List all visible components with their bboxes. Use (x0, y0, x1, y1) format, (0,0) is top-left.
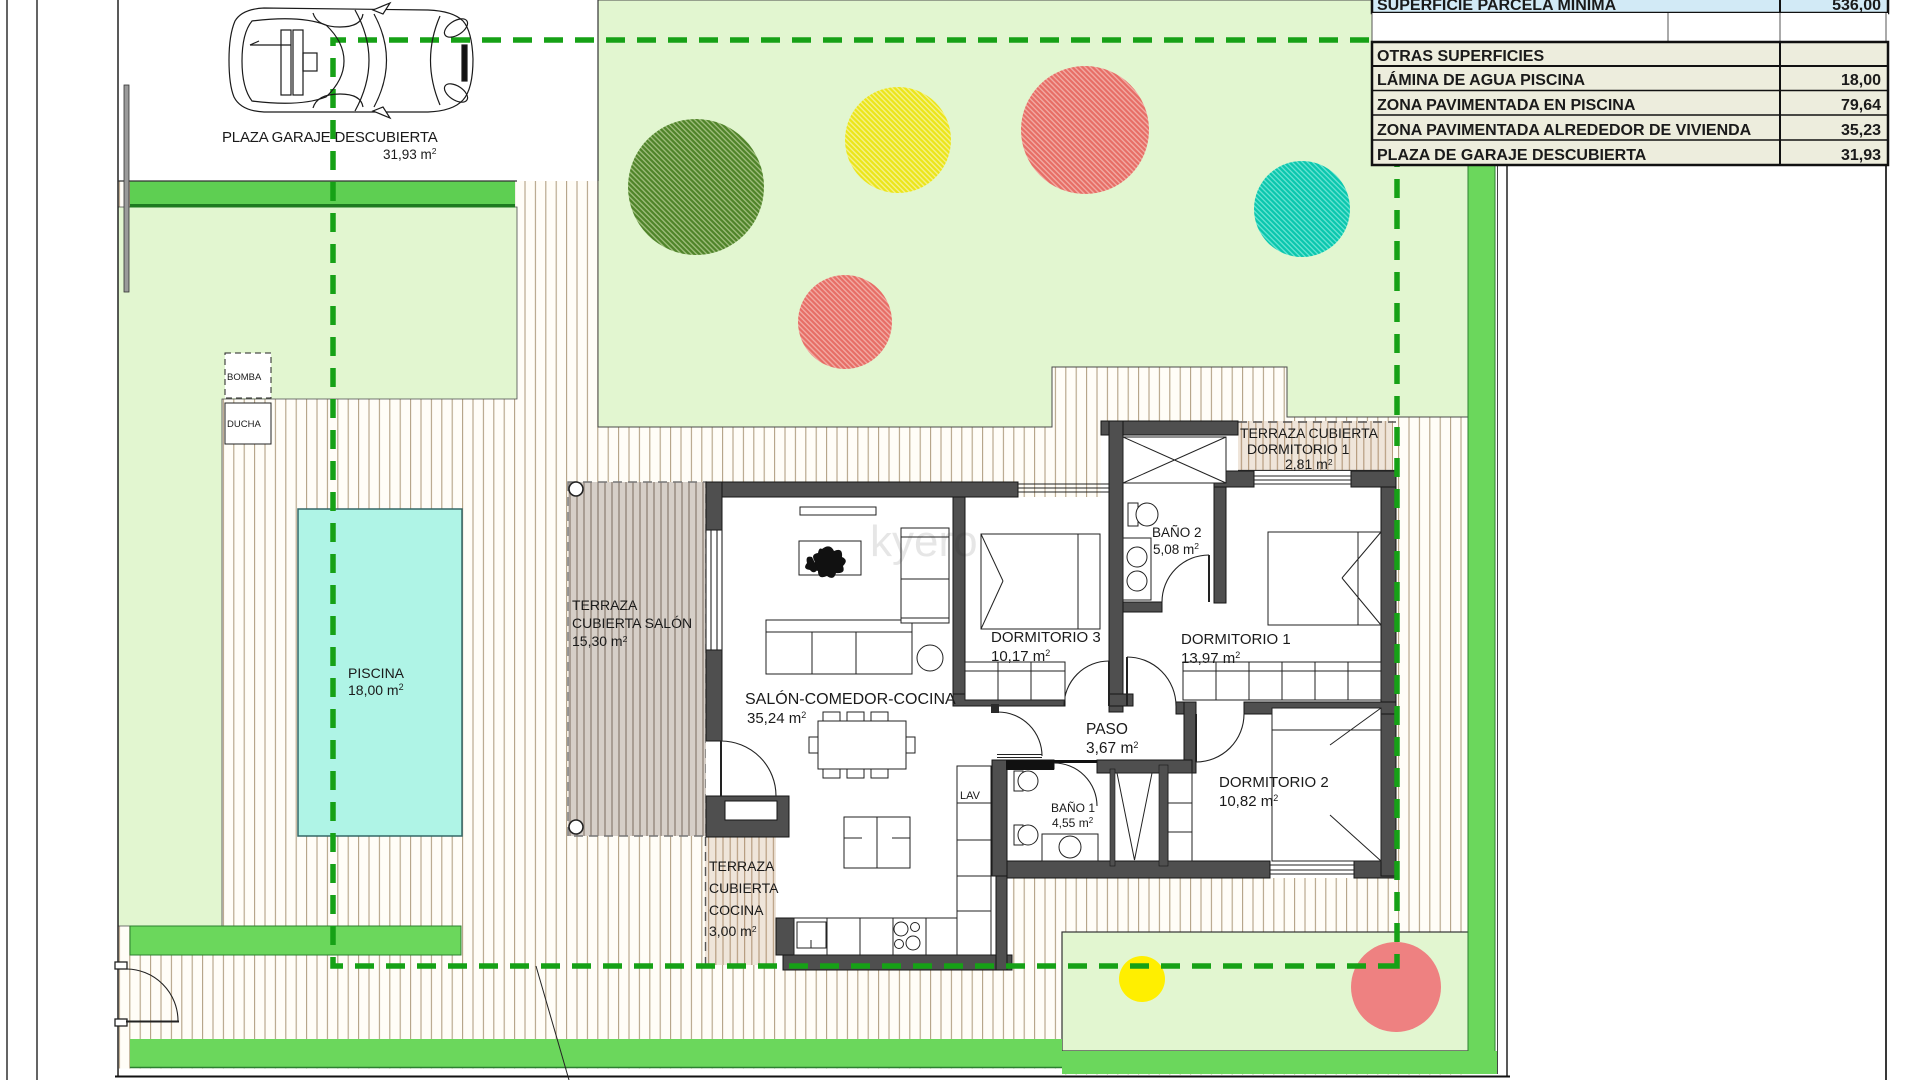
svg-text:18,00 m2: 18,00 m2 (348, 682, 404, 698)
svg-text:LÁMINA DE AGUA PISCINA: LÁMINA DE AGUA PISCINA (1377, 70, 1585, 89)
svg-text:31,93 m2: 31,93 m2 (383, 146, 437, 162)
svg-text:536,00: 536,00 (1832, 0, 1881, 14)
svg-text:PISCINA: PISCINA (348, 665, 405, 681)
svg-text:DORMITORIO 2: DORMITORIO 2 (1219, 774, 1329, 791)
svg-text:CUBIERTA: CUBIERTA (709, 880, 779, 896)
svg-text:3,00 m2: 3,00 m2 (709, 923, 757, 939)
svg-text:4,55 m2: 4,55 m2 (1052, 816, 1094, 830)
svg-text:DORMITORIO 1: DORMITORIO 1 (1181, 631, 1291, 648)
svg-text:TERRAZA: TERRAZA (572, 597, 638, 613)
svg-text:35,23: 35,23 (1841, 122, 1881, 139)
svg-text:ZONA PAVIMENTADA ALREDEDOR DE: ZONA PAVIMENTADA ALREDEDOR DE VIVIENDA (1377, 122, 1752, 139)
svg-text:OTRAS SUPERFICIES: OTRAS SUPERFICIES (1377, 48, 1544, 65)
svg-text:DUCHA: DUCHA (227, 419, 261, 430)
svg-text:kyero: kyero (870, 517, 978, 566)
svg-text:COCINA: COCINA (709, 902, 764, 918)
svg-text:BAÑO 2: BAÑO 2 (1152, 525, 1202, 540)
svg-text:79,64: 79,64 (1841, 97, 1881, 114)
svg-text:PASO: PASO (1086, 721, 1128, 738)
svg-text:DORMITORIO 3: DORMITORIO 3 (991, 629, 1101, 646)
svg-text:5,08 m2: 5,08 m2 (1153, 541, 1199, 557)
svg-text:3,67 m2: 3,67 m2 (1086, 740, 1138, 757)
svg-text:35,24 m2: 35,24 m2 (747, 710, 806, 727)
svg-text:10,82 m2: 10,82 m2 (1219, 793, 1278, 810)
svg-text:13,97 m2: 13,97 m2 (1181, 650, 1240, 667)
svg-text:TERRAZA: TERRAZA (709, 858, 775, 874)
svg-text:ZONA PAVIMENTADA EN PISCINA: ZONA PAVIMENTADA EN PISCINA (1377, 97, 1636, 114)
svg-text:TERRAZA CUBIERTA: TERRAZA CUBIERTA (1240, 425, 1379, 441)
svg-text:DORMITORIO 1: DORMITORIO 1 (1247, 441, 1350, 457)
svg-text:2,81 m2: 2,81 m2 (1285, 456, 1333, 472)
svg-text:31,93: 31,93 (1841, 147, 1881, 164)
svg-text:10,17 m2: 10,17 m2 (991, 648, 1050, 665)
svg-text:BOMBA: BOMBA (227, 372, 262, 383)
svg-text:SALÓN-COMEDOR-COCINA: SALÓN-COMEDOR-COCINA (745, 689, 956, 708)
svg-text:PLAZA GARAJE DESCUBIERTA: PLAZA GARAJE DESCUBIERTA (222, 129, 438, 146)
svg-text:SUPERFICIE PARCELA MINIMA: SUPERFICIE PARCELA MINIMA (1377, 0, 1617, 14)
svg-text:CUBIERTA SALÓN: CUBIERTA SALÓN (572, 615, 692, 631)
svg-text:15,30 m2: 15,30 m2 (572, 633, 628, 649)
svg-text:18,00: 18,00 (1841, 72, 1881, 89)
svg-text:PLAZA DE GARAJE DESCUBIERTA: PLAZA DE GARAJE DESCUBIERTA (1377, 147, 1647, 164)
svg-text:LAV: LAV (960, 790, 981, 802)
svg-text:BAÑO 1: BAÑO 1 (1051, 801, 1095, 815)
